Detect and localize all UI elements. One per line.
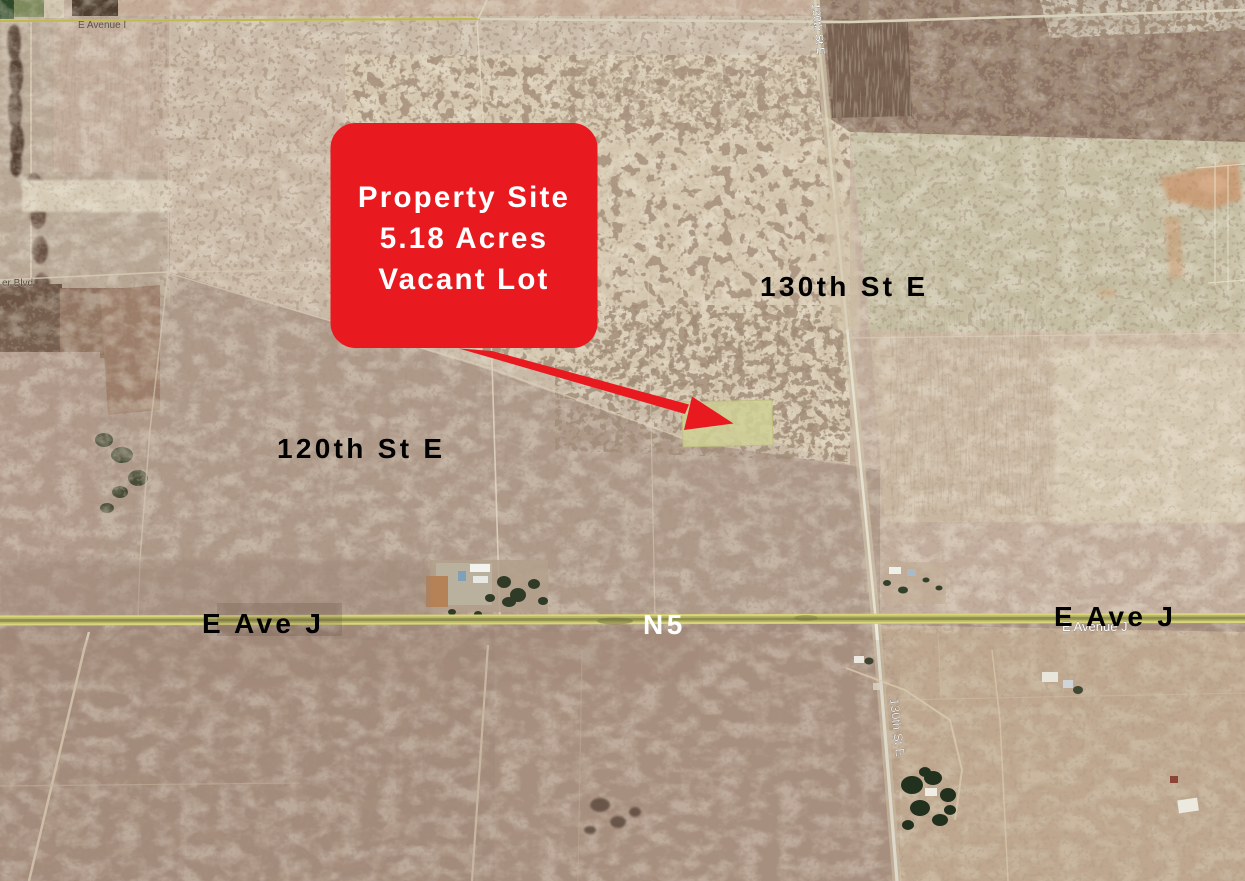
svg-text:E Avenue I: E Avenue I	[78, 20, 126, 31]
svg-text:130th St E: 130th St E	[760, 271, 928, 302]
svg-text:5.18 Acres: 5.18 Acres	[380, 222, 549, 255]
svg-text:Property Site: Property Site	[358, 181, 570, 214]
svg-text:N5: N5	[643, 609, 686, 640]
svg-text:er Blvd: er Blvd	[2, 278, 33, 289]
svg-text:120th St E: 120th St E	[277, 433, 445, 464]
svg-text:Vacant Lot: Vacant Lot	[378, 263, 549, 296]
svg-text:E Ave J: E Ave J	[1054, 601, 1176, 632]
svg-text:E Ave J: E Ave J	[202, 608, 324, 639]
